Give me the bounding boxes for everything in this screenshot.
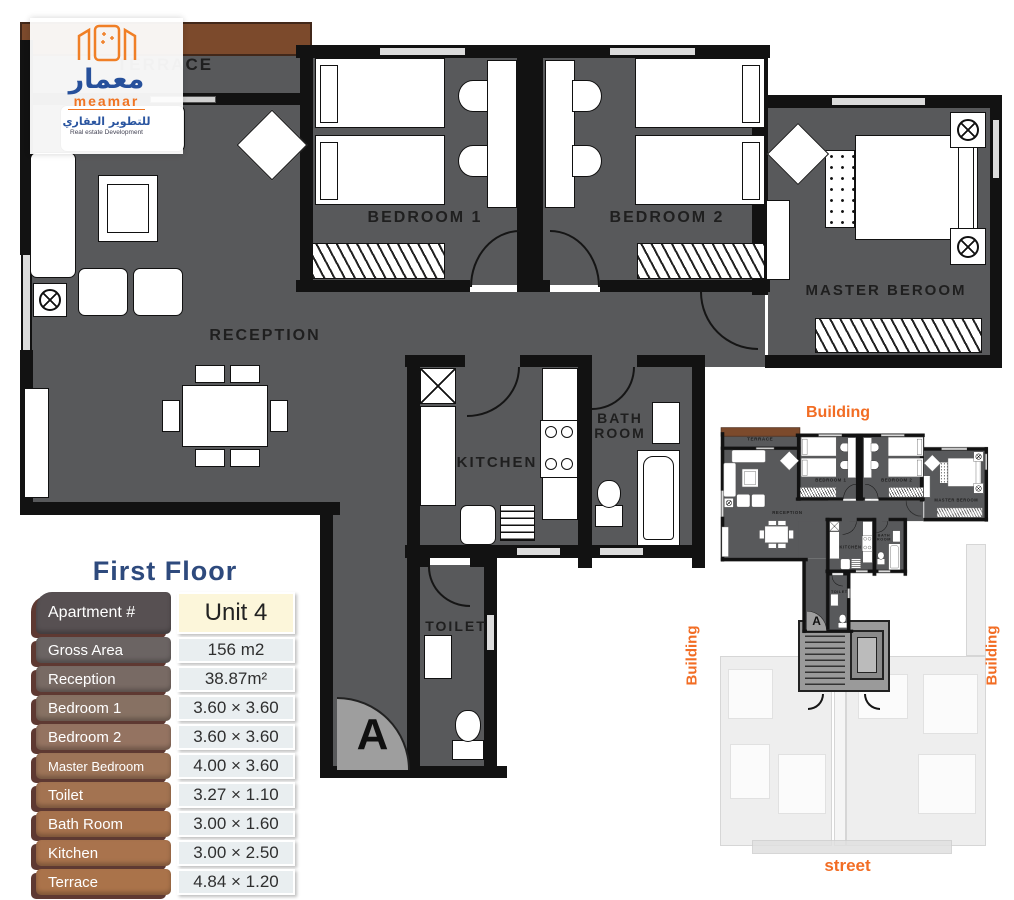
table-row: Toilet3.27 × 1.10 <box>36 782 298 808</box>
lamp-table <box>33 283 67 317</box>
window <box>878 570 890 573</box>
company-logo: معمار meamar للتطوير العقاري Real estate… <box>30 18 183 154</box>
window <box>985 454 988 470</box>
table-row-label: Master Bedroom <box>36 753 171 779</box>
wall <box>889 518 905 521</box>
toilet-wc <box>452 740 484 760</box>
table-row: Terrace4.84 × 1.20 <box>36 869 298 895</box>
dining-chair <box>759 530 764 539</box>
terrace-planter <box>721 427 800 436</box>
chair <box>458 145 488 177</box>
burner <box>545 426 557 438</box>
table-row: Master Bedroom4.00 × 3.60 <box>36 753 298 779</box>
desk <box>545 60 575 208</box>
table-row-label: Bath Room <box>36 811 171 837</box>
toilet-wc <box>877 559 885 565</box>
coffee-table <box>742 469 758 487</box>
bed <box>635 135 765 205</box>
logo-arabic-tagline: للتطوير العقاري <box>30 114 183 129</box>
building-label-right: Building <box>984 611 1001 701</box>
window <box>991 120 1001 178</box>
kitchen-sink <box>460 505 496 545</box>
table-row: Bath Room3.00 × 1.60 <box>36 811 298 837</box>
desk <box>487 60 517 208</box>
rug <box>940 462 948 483</box>
table-header-label: Apartment # <box>36 592 171 634</box>
tv-unit <box>722 527 729 557</box>
faded-balcony <box>752 840 952 854</box>
pillow <box>320 142 338 200</box>
bathtub-basin <box>890 545 898 568</box>
dining-table <box>182 385 268 447</box>
logo-english-tagline: Real estate Development <box>30 129 183 137</box>
lamp-icon <box>957 119 979 141</box>
table-row-label: Toilet <box>36 782 171 808</box>
dining-chair <box>778 521 786 526</box>
toilet-wc <box>455 710 481 742</box>
pillow <box>742 65 760 123</box>
table-row: Bedroom 23.60 × 3.60 <box>36 724 298 750</box>
table-row-label: Bedroom 1 <box>36 695 171 721</box>
pillow <box>976 460 980 485</box>
logo-arabic-name: معمار <box>30 67 183 93</box>
bathroom-label-line2: ROOM <box>565 425 675 441</box>
table-header-row: Apartment # Unit 4 <box>36 592 298 634</box>
pillow <box>802 439 807 455</box>
dining-chair <box>230 449 260 467</box>
wall <box>923 518 987 522</box>
chair <box>840 443 848 452</box>
unit-details-table: Apartment # Unit 4 Gross Area156 m2Recep… <box>36 592 298 898</box>
street-label: street <box>800 856 895 876</box>
table-row: Reception38.87m² <box>36 666 298 692</box>
pillow <box>802 460 807 476</box>
dining-chair <box>789 530 794 539</box>
dining-chair <box>768 521 776 526</box>
sofa <box>723 463 736 497</box>
armchair <box>133 268 183 316</box>
building-site-plan: A TERRACE RECEPTION BEDROOM 1 BEDROOM 2 … <box>718 424 989 858</box>
dining-chair <box>270 400 288 432</box>
nightstand <box>950 228 986 265</box>
wall <box>802 559 806 633</box>
burner <box>561 458 573 470</box>
sofa <box>30 152 76 278</box>
pillow <box>917 439 922 455</box>
bathroom-label-line1: BATH <box>565 410 675 426</box>
bed <box>948 458 981 487</box>
dresser <box>766 200 790 280</box>
table-row: Bedroom 13.60 × 3.60 <box>36 695 298 721</box>
nightstand <box>974 452 984 462</box>
building-label-left: Building <box>684 611 701 701</box>
armchair <box>736 494 750 507</box>
reception-label: RECEPTION <box>190 327 340 345</box>
bed <box>801 458 836 477</box>
entrance-marker-label: A <box>357 710 389 760</box>
faded-room <box>778 754 826 814</box>
bed <box>315 135 445 205</box>
table-row-value: 3.00 × 1.60 <box>177 811 295 837</box>
window <box>942 447 967 450</box>
wardrobe <box>312 243 445 279</box>
fridge <box>420 368 456 404</box>
wardrobe <box>889 487 924 497</box>
lamp-icon <box>957 236 979 258</box>
wall <box>692 355 705 568</box>
faded-room <box>728 669 773 719</box>
wall <box>796 497 843 500</box>
wall <box>20 502 340 515</box>
bedroom2-label: BEDROOM 2 <box>592 209 742 227</box>
wall <box>517 45 543 292</box>
window <box>600 546 643 557</box>
pillow <box>320 65 338 123</box>
wall <box>484 558 497 776</box>
wall <box>857 497 865 500</box>
table-row-value: 4.00 × 3.60 <box>177 753 295 779</box>
nightstand <box>950 112 986 148</box>
bed <box>801 437 836 456</box>
wall <box>847 573 851 632</box>
faded-room <box>730 744 770 799</box>
chair <box>871 443 879 452</box>
wall <box>520 280 550 292</box>
logo-buildings-icon <box>65 22 149 62</box>
dish-rack <box>500 505 535 541</box>
wall <box>296 280 470 292</box>
dresser <box>924 476 931 498</box>
table-row-value: 156 m2 <box>177 637 295 663</box>
faded-room <box>923 674 978 734</box>
chair <box>572 80 602 112</box>
table-row-value: 38.87m² <box>177 666 295 692</box>
lamp-icon <box>726 500 732 506</box>
armchair <box>78 268 128 316</box>
sofa <box>732 450 766 463</box>
rug <box>825 150 855 228</box>
coffee-table <box>98 175 158 242</box>
window <box>610 46 695 57</box>
master-bedroom-label: MASTER BEROOM <box>929 498 983 503</box>
entrance-marker-label: A <box>812 614 821 628</box>
wall <box>856 434 863 501</box>
terrace-label: TERRACE <box>740 436 781 441</box>
table-row: Kitchen3.00 × 2.50 <box>36 840 298 866</box>
highlighted-unit: A TERRACE RECEPTION BEDROOM 1 BEDROOM 2 … <box>718 424 989 636</box>
toilet-wc <box>839 614 846 623</box>
bathroom-label-line2: ROOM <box>869 537 899 541</box>
table-row-label: Bedroom 2 <box>36 724 171 750</box>
pillow <box>742 142 760 200</box>
lamp-icon <box>39 289 61 311</box>
table-row-value: 3.60 × 3.60 <box>177 724 295 750</box>
kitchen-label: KITCHEN <box>834 545 867 550</box>
bed <box>888 458 923 477</box>
window <box>517 546 560 557</box>
dining-chair <box>768 543 776 548</box>
toilet-wc <box>595 505 623 527</box>
wall <box>405 355 465 367</box>
dining-chair <box>162 400 180 432</box>
window <box>380 46 465 57</box>
lamp-icon <box>976 485 982 491</box>
bathtub <box>889 544 901 570</box>
wardrobe <box>637 243 765 279</box>
table-row-label: Terrace <box>36 869 171 895</box>
elevator-icon <box>850 630 884 680</box>
desk <box>848 438 856 478</box>
dining-chair <box>778 543 786 548</box>
bathtub <box>637 450 680 546</box>
toilet-wc <box>597 480 621 508</box>
bed <box>315 58 445 128</box>
window <box>856 570 868 573</box>
master-bedroom-label: MASTER BEROOM <box>786 282 986 299</box>
table-row-value: 3.60 × 3.60 <box>177 695 295 721</box>
pillow <box>917 460 922 476</box>
toilet-wc <box>878 552 885 560</box>
reception-label: RECEPTION <box>767 510 808 515</box>
faded-room <box>918 754 976 814</box>
table-header-value: Unit 4 <box>177 592 295 634</box>
wardrobe <box>800 487 836 497</box>
chair <box>871 461 879 470</box>
dining-chair <box>195 365 225 383</box>
table-row-label: Reception <box>36 666 171 692</box>
logo-latin-name: meamar <box>68 94 146 110</box>
wall <box>415 555 430 567</box>
table-row-label: Kitchen <box>36 840 171 866</box>
armchair <box>751 494 765 507</box>
wall <box>904 518 908 576</box>
dish-rack <box>851 559 861 569</box>
wall <box>320 505 333 778</box>
floor-title: First Floor <box>40 556 290 587</box>
chair <box>458 80 488 112</box>
dining-table <box>765 526 788 543</box>
dining-chair <box>230 365 260 383</box>
burner <box>868 546 871 549</box>
wall <box>721 558 808 562</box>
fridge <box>830 521 840 531</box>
burner <box>864 537 867 540</box>
table-row-value: 3.00 × 2.50 <box>177 840 295 866</box>
toilet-sink <box>424 635 452 679</box>
table-body: Gross Area156 m2Reception38.87m²Bedroom … <box>36 637 298 895</box>
wardrobe <box>937 508 982 518</box>
wardrobe <box>815 318 982 353</box>
building-label-top: Building <box>778 404 898 422</box>
page: A TERRACE RECEPTION BEDROOM 1 BEDROOM 2 … <box>0 0 1014 900</box>
bedroom2-label: BEDROOM 2 <box>876 478 917 483</box>
wall <box>765 355 1002 368</box>
toilet-label: TOILET <box>823 589 856 593</box>
kitchen-label: KITCHEN <box>437 454 557 471</box>
bed <box>888 437 923 456</box>
wall <box>600 280 770 292</box>
bedroom1-label: BEDROOM 1 <box>810 478 851 483</box>
table-row-label: Gross Area <box>36 637 171 663</box>
toilet-sink <box>831 594 839 606</box>
wall <box>637 355 695 367</box>
bed <box>635 58 765 128</box>
lamp-table <box>724 498 733 507</box>
dining-chair <box>195 449 225 467</box>
pillow <box>958 141 974 234</box>
chair <box>840 461 848 470</box>
window <box>832 96 925 107</box>
coffee-table-top <box>107 184 149 233</box>
table-row-value: 3.27 × 1.10 <box>177 782 295 808</box>
lamp-icon <box>976 454 982 460</box>
wall <box>578 355 592 568</box>
kitchen-sink <box>840 559 850 570</box>
toilet-wc <box>838 623 847 628</box>
chair <box>572 145 602 177</box>
table-row: Gross Area156 m2 <box>36 637 298 663</box>
tv-unit <box>24 388 49 498</box>
toilet-label: TOILET <box>396 618 516 634</box>
bedroom1-label: BEDROOM 1 <box>350 209 500 227</box>
table-row-value: 4.84 × 1.20 <box>177 869 295 895</box>
nightstand <box>974 483 984 493</box>
bathtub-basin <box>643 456 674 540</box>
bed <box>855 135 978 240</box>
coffee-table-top <box>744 471 755 484</box>
